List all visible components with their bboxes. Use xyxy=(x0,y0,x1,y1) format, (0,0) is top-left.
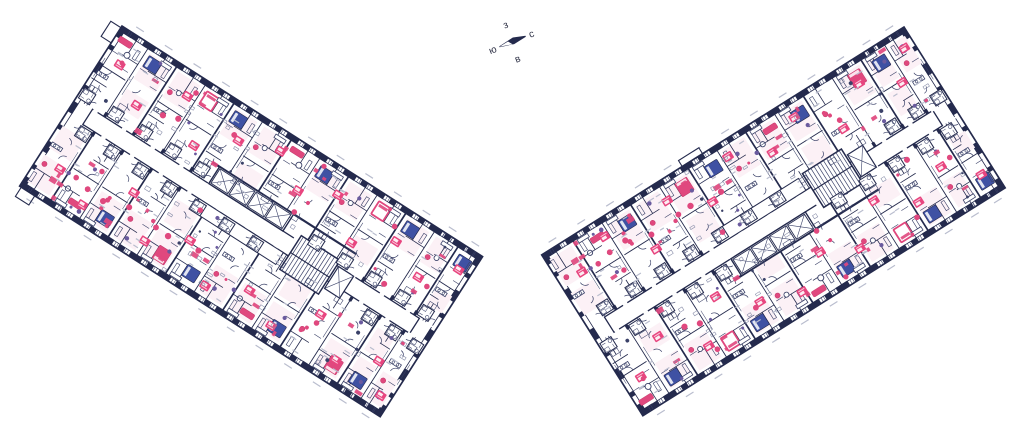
svg-text:в: в xyxy=(513,54,522,66)
svg-text:ю: ю xyxy=(487,44,498,57)
svg-text:с: с xyxy=(527,29,536,41)
svg-text:з: з xyxy=(502,20,511,32)
